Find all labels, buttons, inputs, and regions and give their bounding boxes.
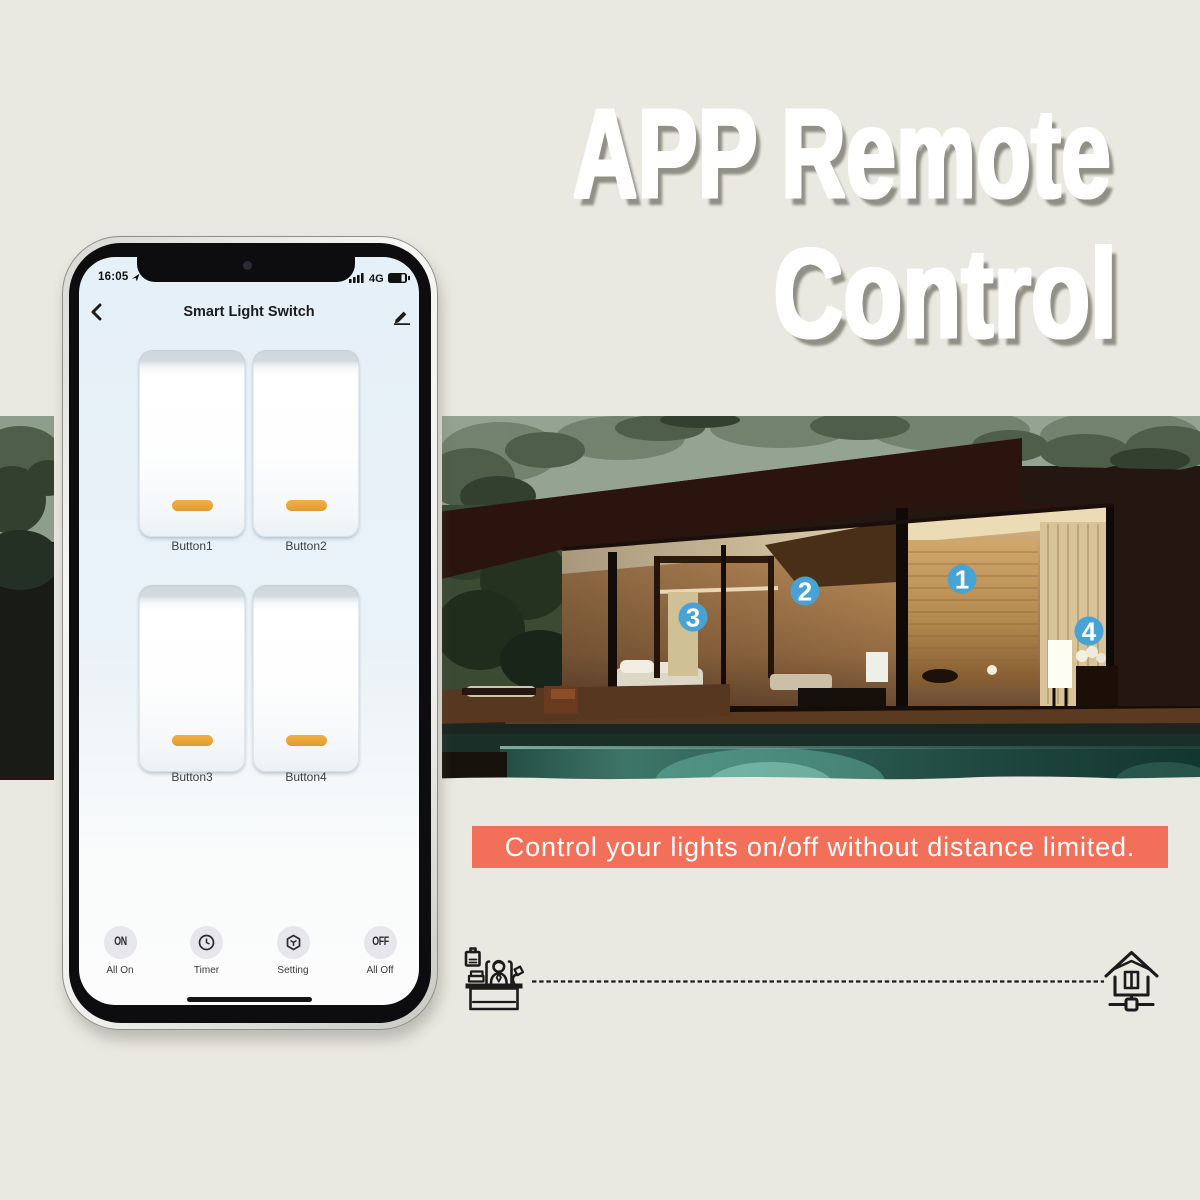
svg-text:4G: 4G [369,273,384,284]
svg-text:3: 3 [686,603,700,633]
svg-text:2: 2 [798,577,812,607]
svg-text:1: 1 [955,565,969,595]
svg-text:4: 4 [1082,617,1097,647]
